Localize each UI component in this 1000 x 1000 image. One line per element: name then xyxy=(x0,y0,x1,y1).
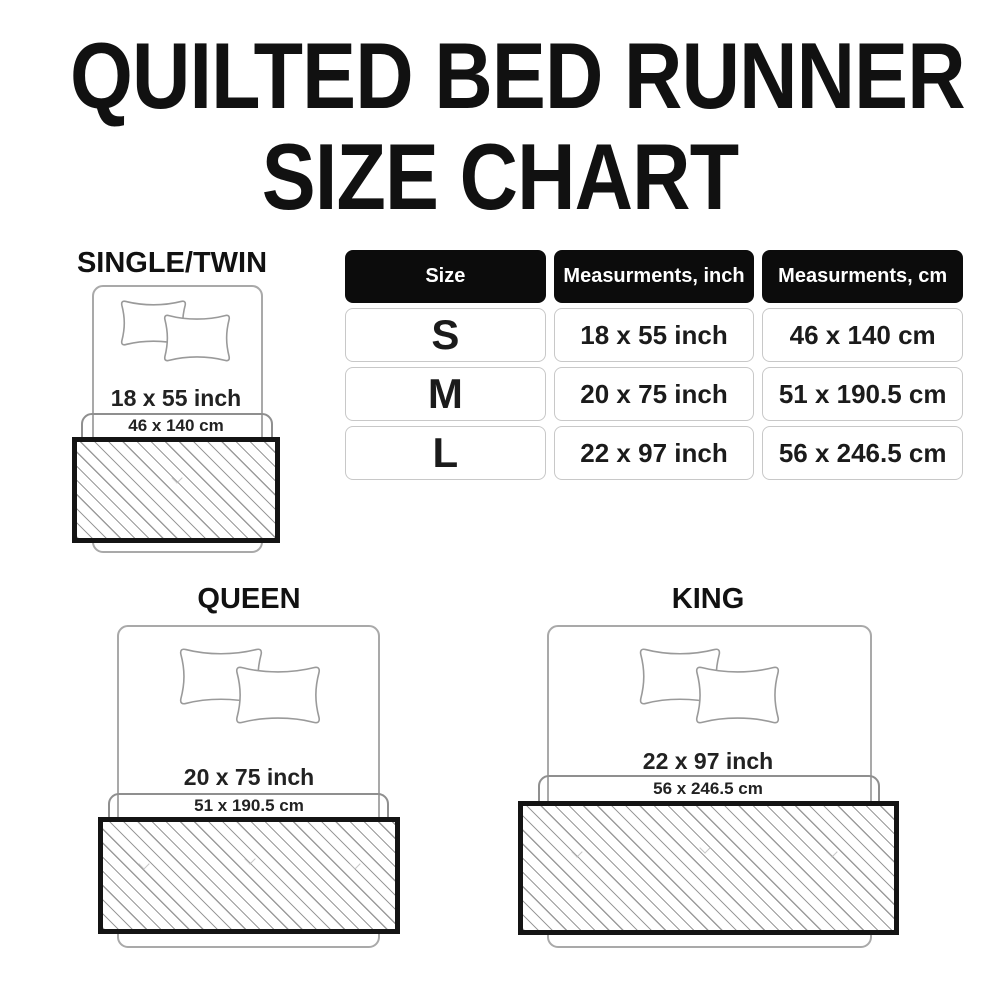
single-twin-runner-swatch xyxy=(72,437,280,543)
king-runner-swatch xyxy=(518,801,899,935)
single-twin-heading: SINGLE/TWIN xyxy=(52,247,292,280)
stitch-mark xyxy=(826,846,837,857)
queen-cm-label: 51 x 190.5 cm xyxy=(98,796,400,816)
page-title: QUILTED BED RUNNER SIZE CHART xyxy=(0,26,1000,227)
stitch-mark xyxy=(171,472,182,483)
stitch-mark xyxy=(138,858,149,869)
single-twin-pillow-front xyxy=(161,311,233,365)
table-cell-size-s: S xyxy=(345,308,546,362)
queen-pillow-front xyxy=(232,662,324,728)
table-cell-inch-s: 18 x 55 inch xyxy=(554,308,755,362)
queen-heading: QUEEN xyxy=(129,583,369,616)
table-cell-inch-l: 22 x 97 inch xyxy=(554,426,755,480)
table-cell-cm-l: 56 x 246.5 cm xyxy=(762,426,963,480)
table-header-inch: Measurments, inch xyxy=(554,250,755,303)
page-title-line-1: QUILTED BED RUNNER xyxy=(70,26,930,127)
stitch-mark xyxy=(244,853,255,864)
stitch-mark xyxy=(571,846,582,857)
king-cm-label: 56 x 246.5 cm xyxy=(558,779,858,799)
single-twin-cm-label: 46 x 140 cm xyxy=(76,416,276,436)
table-cell-cm-m: 51 x 190.5 cm xyxy=(762,367,963,421)
table-header-cm: Measurments, cm xyxy=(762,250,963,303)
table-header-size: Size xyxy=(345,250,546,303)
king-inch-label: 22 x 97 inch xyxy=(558,748,858,775)
table-cell-inch-m: 20 x 75 inch xyxy=(554,367,755,421)
table-cell-size-l: L xyxy=(345,426,546,480)
queen-runner-swatch xyxy=(98,817,400,934)
size-table: Size Measurments, inch Measurments, cm S… xyxy=(345,250,963,480)
page-title-line-2: SIZE CHART xyxy=(70,127,930,228)
stitch-mark xyxy=(699,842,710,853)
stitch-mark xyxy=(349,858,360,869)
queen-inch-label: 20 x 75 inch xyxy=(98,764,400,791)
single-twin-inch-label: 18 x 55 inch xyxy=(76,385,276,412)
size-chart-infographic: QUILTED BED RUNNER SIZE CHART SINGLE/TWI… xyxy=(0,0,1000,1000)
king-heading: KING xyxy=(588,583,828,616)
table-cell-cm-s: 46 x 140 cm xyxy=(762,308,963,362)
table-cell-size-m: M xyxy=(345,367,546,421)
king-pillow-front xyxy=(692,662,783,728)
